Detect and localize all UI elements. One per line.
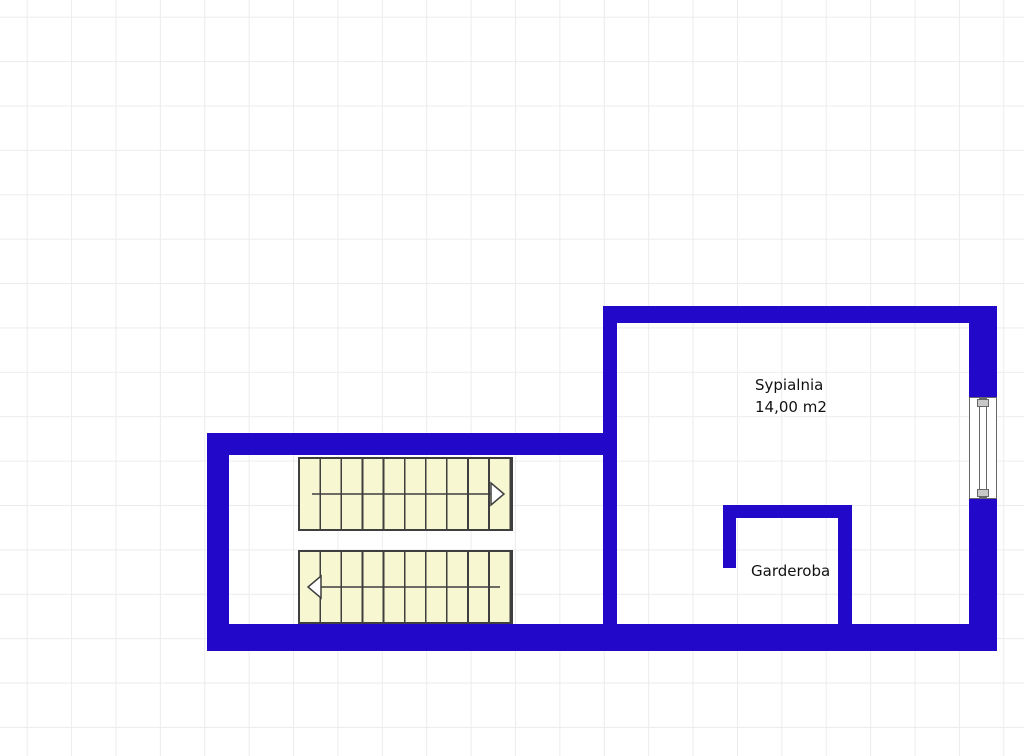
wall-stair-top	[207, 433, 617, 455]
room-name: Garderoba	[751, 560, 830, 582]
stair-arrow-right-icon	[310, 480, 506, 508]
stair-arrow-left-icon	[306, 573, 502, 601]
wall-divider	[603, 306, 617, 624]
wall-right-above-window	[969, 306, 997, 397]
room-label-sypialnia: Sypialnia 14,00 m2	[755, 374, 827, 418]
room-label-garderoba: Garderoba	[751, 560, 830, 582]
room-area: 14,00 m2	[755, 396, 827, 418]
window-sash	[979, 398, 987, 498]
wall-stair-left	[207, 433, 229, 624]
window	[969, 397, 997, 499]
room-name: Sypialnia	[755, 374, 827, 396]
wall-bedroom-top	[603, 306, 997, 323]
wall-garderoba-top	[723, 505, 852, 518]
wall-garderoba-right	[838, 505, 852, 624]
wall-bottom	[207, 624, 997, 651]
window-endcap-top	[977, 399, 989, 407]
floorplan-canvas: Sypialnia 14,00 m2 Garderoba	[0, 0, 1024, 756]
wall-garderoba-left-stub	[723, 505, 736, 568]
window-endcap-bottom	[977, 489, 989, 497]
